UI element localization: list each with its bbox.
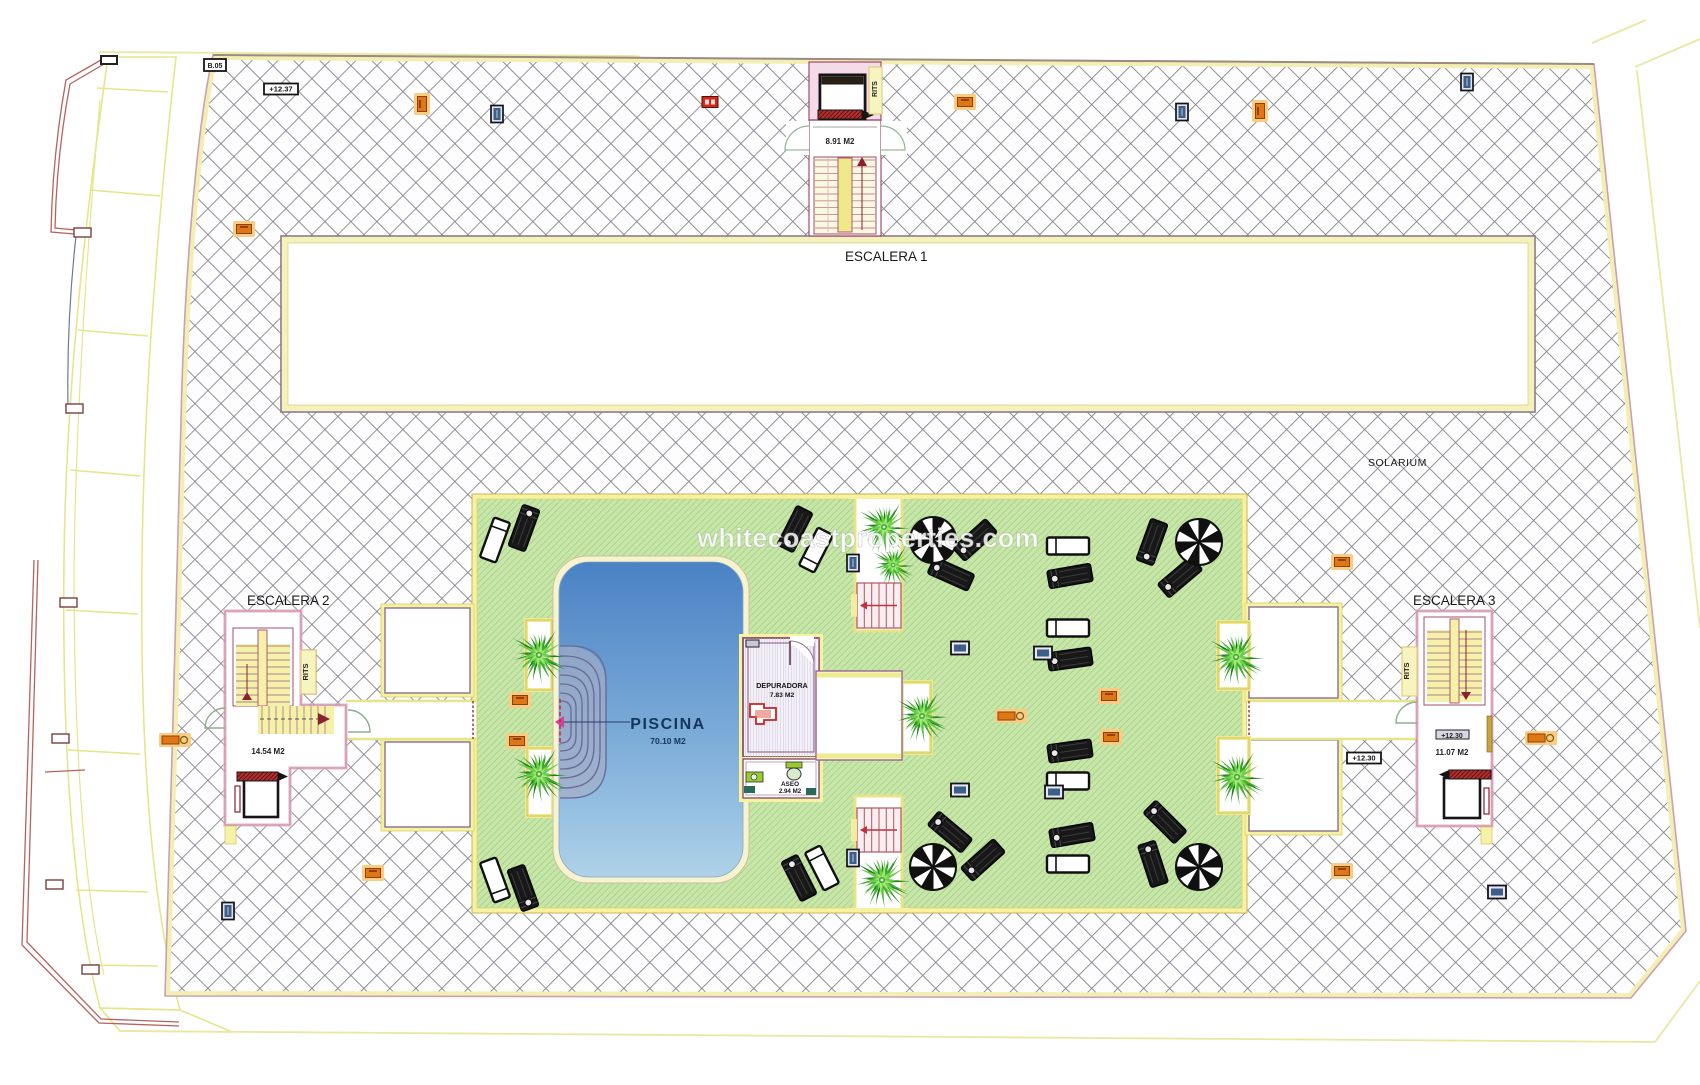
svg-text:+12.30: +12.30 [1441,733,1463,740]
svg-text:ESCALERA 1: ESCALERA 1 [845,249,928,264]
svg-text:whitecoastproperties.com: whitecoastproperties.com [696,523,1039,553]
svg-text:RITS: RITS [872,81,879,97]
svg-text:RITS: RITS [301,663,310,680]
svg-text:B.05: B.05 [208,63,223,70]
svg-text:SOLARIUM: SOLARIUM [1368,457,1427,469]
svg-text:ESCALERA 2: ESCALERA 2 [247,593,330,608]
svg-text:DEPURADORA: DEPURADORA [756,681,808,690]
svg-text:+12.30: +12.30 [1352,754,1375,763]
svg-text:PISCINA: PISCINA [630,716,705,733]
svg-text:70.10 M2: 70.10 M2 [650,736,686,746]
svg-text:8.91 M2: 8.91 M2 [826,137,855,146]
svg-text:7.83 M2: 7.83 M2 [770,692,795,699]
svg-text:14.54 M2: 14.54 M2 [251,747,285,756]
svg-text:11.07 M2: 11.07 M2 [1436,748,1469,757]
svg-text:ESCALERA 3: ESCALERA 3 [1413,593,1496,608]
svg-text:RITS: RITS [1402,662,1411,679]
svg-text:ASEO: ASEO [781,781,799,788]
svg-text:+12.37: +12.37 [269,85,292,94]
svg-text:2.94 M2: 2.94 M2 [779,788,802,795]
